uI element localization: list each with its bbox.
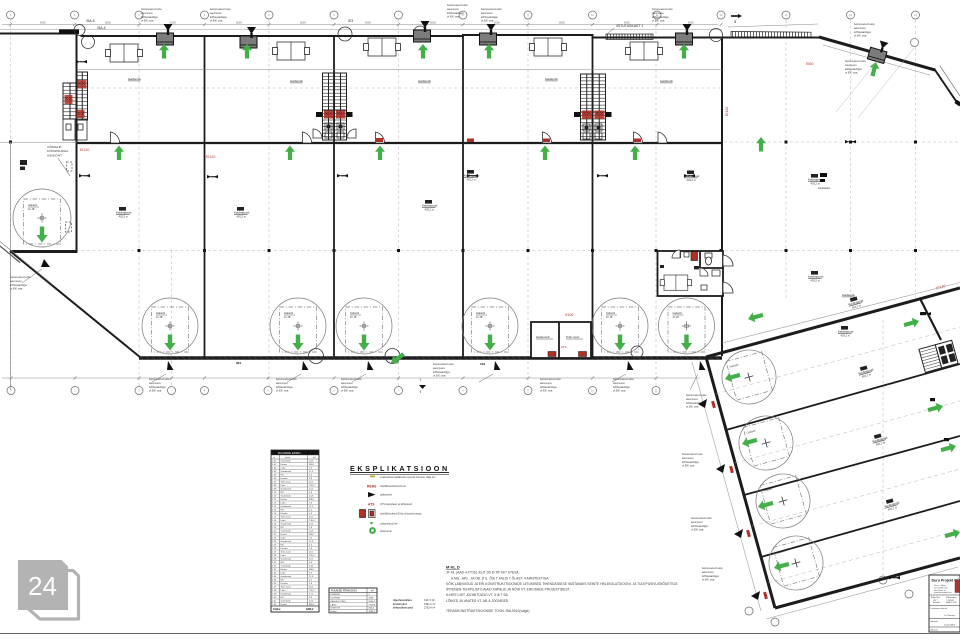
svg-text:2733,4 m²: 2733,4 m² [424,607,435,610]
svg-text:EI60: EI60 [806,62,813,66]
svg-text:krundi pind: krundi pind [393,603,407,606]
svg-text:/E3: /E3 [348,19,353,23]
svg-text:Tellija Üks: Tellija Üks [931,596,940,599]
svg-text:m²: m² [313,456,316,459]
svg-text:RUUMIDE EKSPL.: RUUMIDE EKSPL. [278,451,302,455]
svg-text:vt EK osa: vt EK osa [481,19,494,23]
svg-text:vt EK osa: vt EK osa [149,389,162,393]
svg-text:I: I [420,389,421,394]
svg-text:/SA-5: /SA-5 [86,19,95,23]
svg-text:Garderoob: Garderoob [281,523,292,526]
svg-text:Garderoob: Garderoob [281,593,292,596]
svg-text:6000: 6000 [365,20,371,24]
svg-text:vt EK osa: vt EK osa [691,528,704,532]
svg-text:nr: nr [273,456,275,459]
svg-text:Kaubaalus: Kaubaalus [818,186,831,190]
svg-text:ASUKOHT: ASUKOHT [47,153,62,157]
svg-text:Kontor: Kontor [281,463,288,466]
svg-text:Garderoob: Garderoob [281,575,292,578]
svg-text:Arhitekt: Arhitekt [931,629,938,632]
svg-text:Tehn.ruum: Tehn.ruum [566,335,580,339]
svg-text:EI120: EI120 [80,148,89,152]
svg-text:vt EK osa: vt EK osa [276,389,289,393]
svg-text:REHS: REHS [367,484,377,488]
svg-text:6000: 6000 [300,20,306,24]
svg-text:LADU: LADU [331,603,337,606]
svg-text:Garderoob: Garderoob [128,77,141,81]
svg-text:964: 964 [236,361,241,365]
svg-text:Koridor: Koridor [281,582,288,585]
svg-text:4x 18: 4x 18 [350,315,357,319]
svg-text:www.duruprojekt.ee: www.duruprojekt.ee [934,591,952,594]
svg-text:Tehn.ruum: Tehn.ruum [281,551,292,554]
svg-text:vt EK osa: vt EK osa [540,389,553,393]
svg-text:ehitusalune pind: ehitusalune pind [393,607,413,610]
svg-text:vt EK osa: vt EK osa [10,287,23,291]
svg-text:EKSPLIKATSIOON: EKSPLIKATSIOON [350,464,450,473]
svg-text:tuletõkkesektsiooni piir: tuletõkkesektsiooni piir [380,484,406,488]
svg-text:4x 18: 4x 18 [476,315,483,319]
svg-text:Gabariit: Gabariit [673,311,682,315]
svg-text:JF 43. (AAD 4 K*OS) JGJT: JF 43. (AAD 4 K*OS) JGJT D5 Ib TIF EK* S… [446,571,520,575]
svg-text:KÕIK LÄBIVIIGUD JA ERI-KONSTRU: KÕIK LÄBIVIIGUD JA ERI-KONSTRUKTSIOONIDE… [446,581,679,586]
svg-text:S100: S100 [565,313,573,317]
svg-text:Gabariit: Gabariit [350,311,359,315]
svg-text:vt EK osa: vt EK osa [686,405,699,409]
svg-text:Garderoob: Garderoob [536,335,550,339]
svg-text:Joonis AR-4: Joonis AR-4 [944,624,956,627]
svg-text:ATS keskplaan ja tähistatud: ATS keskplaan ja tähistatud [380,502,413,506]
svg-text:vt EK osa: vt EK osa [341,389,354,393]
svg-text:4x 18: 4x 18 [673,315,680,319]
svg-text:6000: 6000 [236,20,242,24]
svg-text:Garderoob: Garderoob [281,505,292,508]
svg-text:m²: m² [371,590,374,593]
svg-text:6000: 6000 [430,20,436,24]
svg-text:16d: 16d [480,362,485,366]
svg-text:vt EK osa: vt EK osa [447,15,460,19]
svg-text:6000: 6000 [170,20,176,24]
svg-text:Kontor: Kontor [281,533,288,536]
svg-text:TERASKONSTRUKTSIOONIDE TOON: R: TERASKONSTRUKTSIOONIDE TOON: RAL9010(val… [446,609,529,613]
svg-text:Laohoone ehitusk: Laohoone ehitusk [931,607,948,610]
svg-text:ATS: ATS [368,502,375,506]
svg-text:Kontor: Kontor [281,498,288,501]
svg-text:Kontor: Kontor [281,568,288,571]
svg-text:Arhitekt: Arhitekt [931,620,938,623]
svg-text:IPITENEN-TEHIPILISTO AIAID KA: IPITENEN-TEHIPILISTO AIAID KAPALID JA NÕ… [446,587,570,592]
svg-text:I: I [420,377,421,382]
svg-text:Gabariit: Gabariit [476,311,485,315]
svg-text:6000: 6000 [559,20,565,24]
svg-text:vt EK osa: vt EK osa [210,19,223,23]
svg-text:4391,0 m²: 4391,0 m² [424,603,435,606]
svg-text:Garderoob: Garderoob [418,79,431,83]
svg-text:3286,2: 3286,2 [306,608,314,611]
svg-text:Garderoob: Garderoob [842,293,855,297]
svg-text:4x 18: 4x 18 [156,315,163,319]
svg-text:vt EK osa: vt EK osa [652,19,665,23]
svg-text:Põhiprojekt: Põhiprojekt [946,596,957,599]
svg-text:Koridor: Koridor [281,512,288,515]
svg-text:EI120: EI120 [725,107,729,116]
svg-text:M KL D: M KL D [446,565,460,570]
svg-text:tulekustuti: tulekustuti [380,529,392,533]
svg-text:6000: 6000 [40,20,46,24]
svg-text:.A MG.. APs.. JA O: .A MG.. APs.. JA OB. (TIL. ÕIK T 4ALID T… [450,575,549,580]
svg-text:6000: 6000 [688,20,694,24]
svg-text:/SA-4: /SA-4 [97,26,106,30]
svg-text:Garderoob: Garderoob [281,558,292,561]
svg-text:Gabariit: Gabariit [606,311,615,315]
svg-text:I.o. Rannap: I.o. Rannap [944,615,956,617]
svg-text:ruum: ruum [285,456,290,459]
svg-text:Garderoob: Garderoob [281,540,292,543]
svg-text:Gabariit: Gabariit [28,203,37,207]
svg-text:4x 18: 4x 18 [284,315,291,319]
svg-text:Arhitekt: Arhitekt [933,601,940,604]
svg-text:Garderoob: Garderoob [281,488,292,491]
svg-text:Garderoob: Garderoob [660,79,673,83]
svg-text:Koridor: Koridor [281,477,288,480]
svg-text:vt EK osa: vt EK osa [854,34,867,38]
svg-text:C2F 3 1F: C2F 3 1F [424,599,435,602]
svg-text:Kokku: Kokku [273,608,281,611]
svg-text:ATS: ATS [561,345,567,349]
svg-text:Tehn.ruum: Tehn.ruum [281,481,292,484]
svg-text:Gabariit: Gabariit [156,311,165,315]
svg-text:K:HISTI UKT JOOMITÜÜ3O VT. 3: K:HISTI UKT JOOMITÜÜ3O VT. 3 Ib T SA. [446,593,509,597]
svg-text:/ISTUTUSKAST 1: /ISTUTUSKAST 1 [616,24,643,28]
svg-text:Garderoob: Garderoob [290,79,303,83]
svg-text:ÜLDPIND: ÜLDPIND [331,597,341,600]
svg-text:Garderoob: Garderoob [545,77,558,81]
svg-text:vt EK osa: vt EK osa [845,71,858,75]
svg-text:RUUMIDE PÕHIKOKKU: RUUMIDE PÕHIKOKKU [331,590,357,593]
svg-text:Gabariit: Gabariit [284,311,293,315]
svg-text:LÕIKED JA VAATED VT. AR-4-JOON: LÕIKED JA VAATED VT. AR-4-JOONISED. [446,598,509,603]
svg-text:6000: 6000 [105,20,111,24]
svg-text:Tehn.ruum: Tehn.ruum [281,516,292,519]
svg-text:evakuatsioonipääsude suunad ho: evakuatsioonipääsude suunad hoonest välj… [380,475,436,479]
svg-text:Garderoob: Garderoob [281,470,292,473]
svg-text:24: 24 [28,571,57,601]
svg-text:KASULIK PIND: KASULIK PIND [331,600,346,603]
svg-text:EI120: EI120 [206,155,215,159]
svg-text:vt EK osa: vt EK osa [702,578,715,582]
svg-text:vt EK osa: vt EK osa [613,389,626,393]
svg-text:valgustatud tee: valgustatud tee [380,521,398,525]
svg-text:Mõõt 1:100: Mõõt 1:100 [946,601,957,604]
svg-text:vt EK osa: vt EK osa [141,19,154,23]
svg-text:vt EK osa: vt EK osa [433,374,446,378]
svg-text:tuletõkkeuksed EI-ja tulepüsi: tuletõkkeuksed EI-ja tulepüsivusega [380,512,422,516]
svg-text:tuleohutusklass: tuleohutusklass [393,599,413,602]
svg-text:4x 18: 4x 18 [606,315,613,319]
svg-text:vt EK osa: vt EK osa [682,464,695,468]
svg-text:pääsukoht: pääsukoht [380,493,392,497]
svg-text:6000: 6000 [494,20,500,24]
svg-text:Tehn.ruum: Tehn.ruum [281,586,292,589]
svg-text:Koridor: Koridor [281,547,288,550]
svg-text:4x 18: 4x 18 [28,207,35,211]
